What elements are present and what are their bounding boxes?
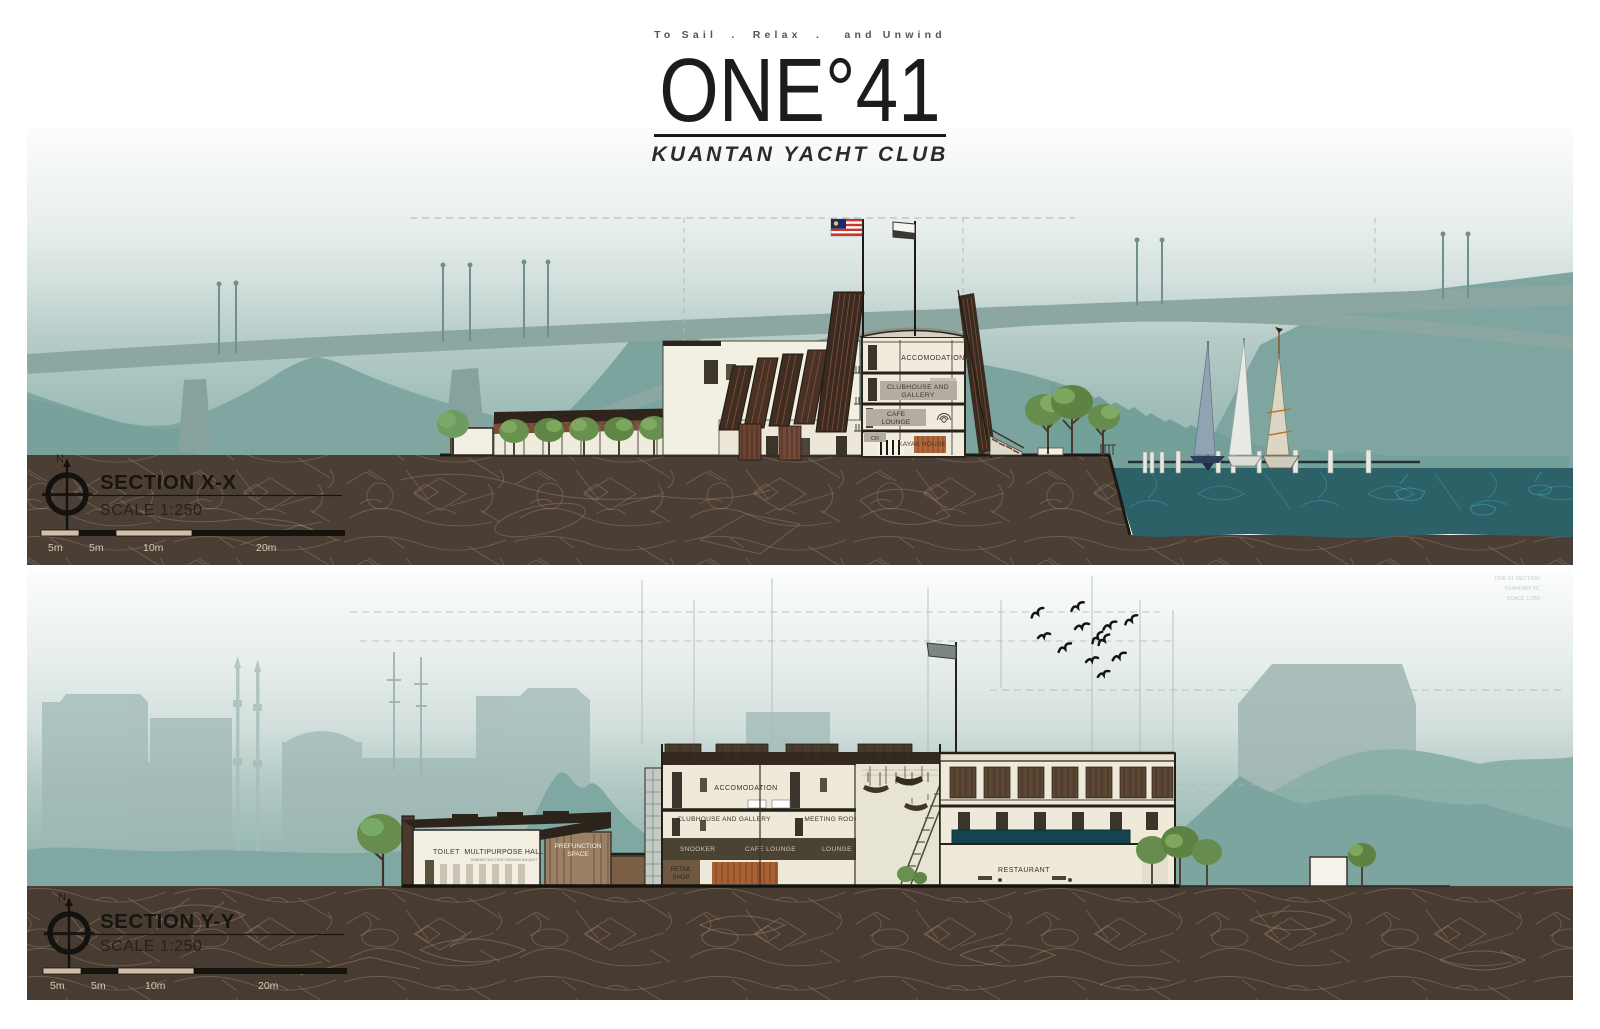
svg-text:CLUBHOUSE AND: CLUBHOUSE AND [887,384,949,391]
svg-text:ONE 41 SECTION: ONE 41 SECTION [1494,576,1540,582]
svg-text:RETAIL: RETAIL [671,867,692,873]
svg-text:KUANTAN YC: KUANTAN YC [1505,586,1540,592]
svg-text:RESTAURANT: RESTAURANT [998,867,1050,874]
svg-text:ACCOMODATION: ACCOMODATION [714,785,777,792]
svg-text:LOUNGE: LOUNGE [822,846,852,853]
svg-text:SPACE: SPACE [567,851,589,858]
svg-text:ACCOMODATION: ACCOMODATION [901,355,964,362]
svg-text:N: N [58,892,66,904]
svg-text:10m: 10m [145,980,166,992]
svg-text:5m: 5m [48,542,63,554]
svg-text:SNOOKER: SNOOKER [680,846,715,853]
svg-text:LOUNGE: LOUNGE [882,419,911,426]
svg-text:SCALE 1:250: SCALE 1:250 [1507,596,1540,602]
svg-text:CAFE LOUNGE: CAFE LOUNGE [745,846,796,853]
svg-text:CR: CR [871,436,879,442]
svg-text:SECTION Y-Y: SECTION Y-Y [100,910,235,933]
svg-text:20m: 20m [256,542,277,554]
svg-text:CLUBHOUSE AND GALLERY: CLUBHOUSE AND GALLERY [677,816,771,823]
svg-text:GALLERY: GALLERY [901,392,934,399]
svg-text:N: N [56,453,64,465]
svg-text:SCALE 1:250: SCALE 1:250 [100,502,202,519]
svg-text:TOILET: TOILET [433,849,460,856]
svg-text:SCALE 1:250: SCALE 1:250 [100,938,202,955]
svg-text:20m: 20m [258,980,279,992]
svg-text:5m: 5m [91,980,106,992]
svg-text:MULTIPURPOSE HALL: MULTIPURPOSE HALL [464,849,543,856]
svg-text:10m: 10m [143,542,164,554]
svg-text:SEMINAR TALK EVENT WEDDING BAN: SEMINAR TALK EVENT WEDDING BANQUET [470,858,537,862]
svg-text:MEETING ROOM: MEETING ROOM [804,816,859,823]
svg-text:SHOP: SHOP [672,875,689,881]
svg-text:5m: 5m [89,542,104,554]
svg-text:SECTION X-X: SECTION X-X [100,471,237,494]
svg-text:CAFE: CAFE [887,411,906,418]
svg-text:PREFUNCTION: PREFUNCTION [555,843,602,850]
svg-text:5m: 5m [50,980,65,992]
svg-text:KAYAK HOUSE: KAYAK HOUSE [898,441,946,448]
